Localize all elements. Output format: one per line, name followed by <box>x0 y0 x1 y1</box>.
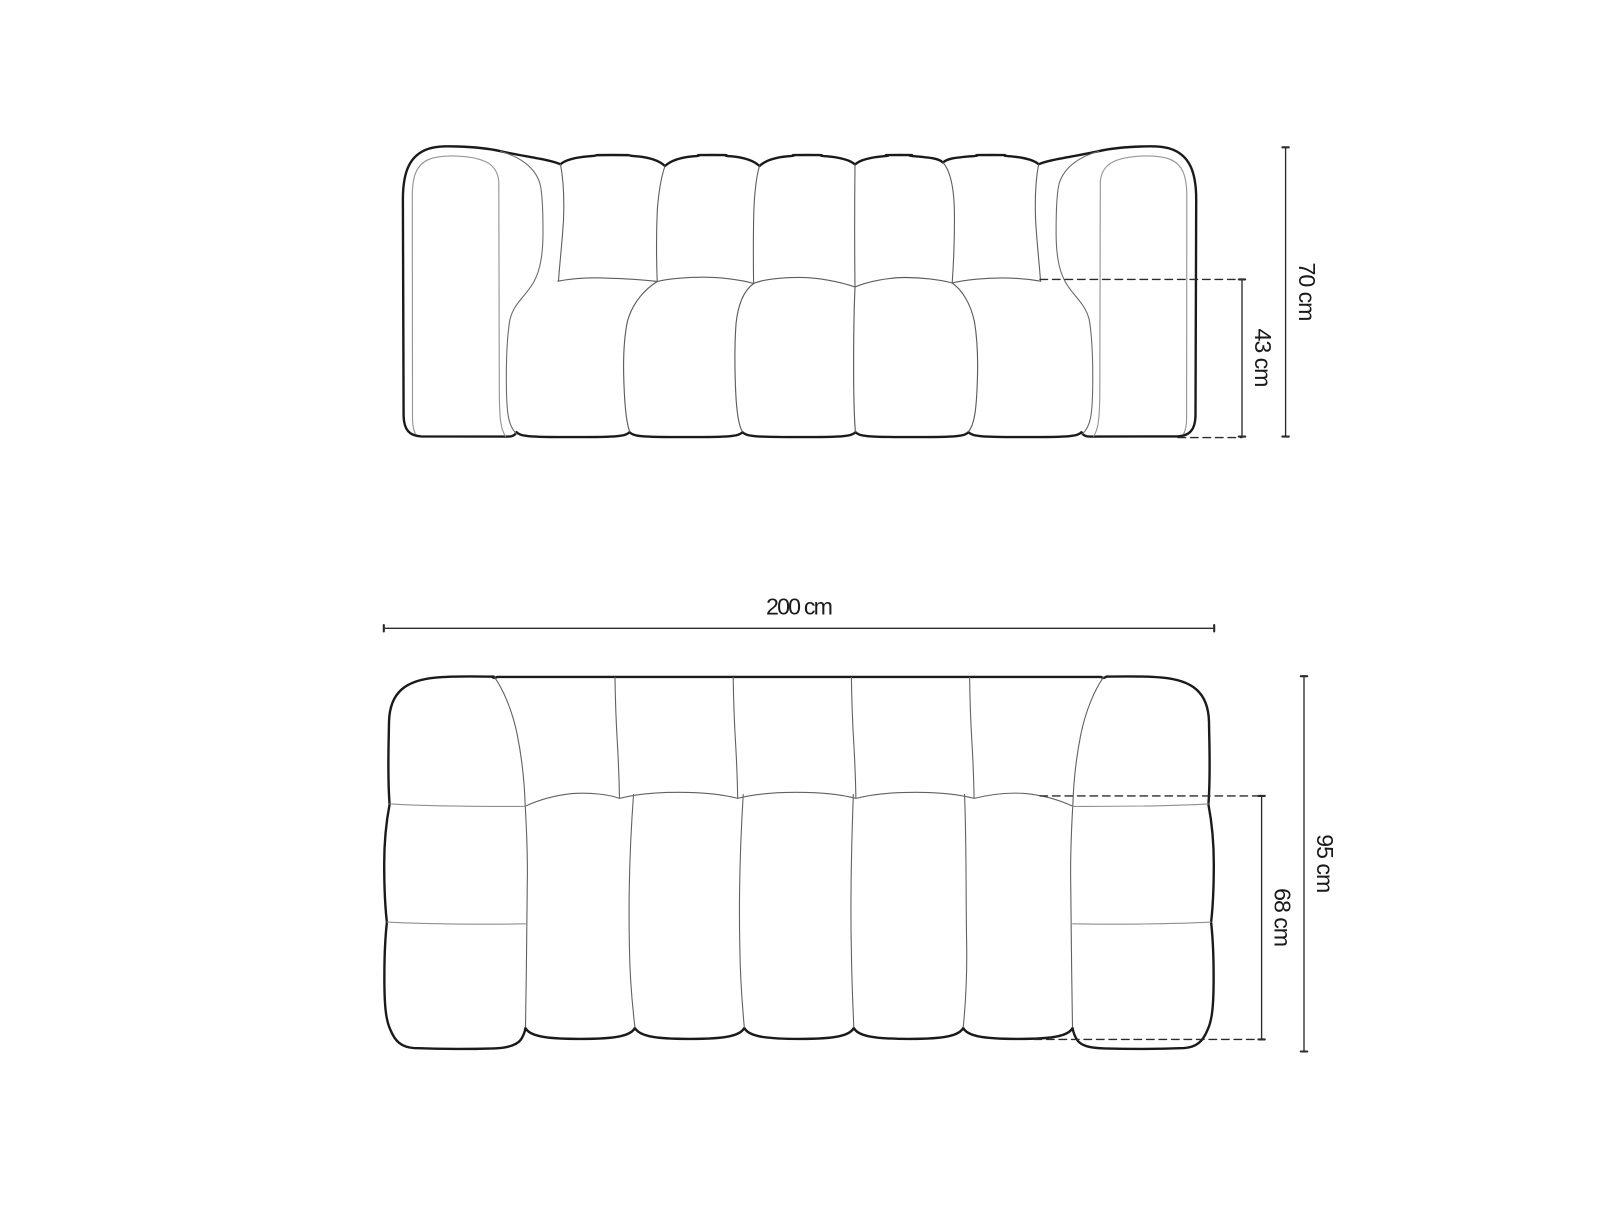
svg-text:43 cm: 43 cm <box>1250 329 1276 388</box>
svg-text:68 cm: 68 cm <box>1269 888 1295 947</box>
svg-text:70 cm: 70 cm <box>1294 263 1320 322</box>
svg-text:200 cm: 200 cm <box>766 594 833 620</box>
svg-text:95 cm: 95 cm <box>1312 834 1338 893</box>
